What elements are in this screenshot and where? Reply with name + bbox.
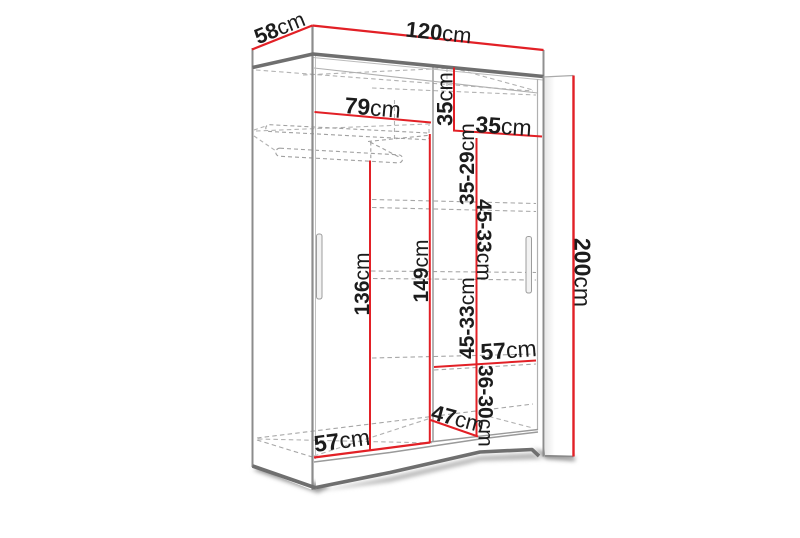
svg-text:35-29cm: 35-29cm [456,123,479,205]
svg-text:57cm: 57cm [480,335,538,365]
svg-text:200cm: 200cm [570,238,596,307]
svg-text:35cm: 35cm [475,111,533,141]
svg-text:136cm: 136cm [351,252,374,315]
svg-text:79cm: 79cm [344,92,402,123]
svg-text:45-33cm: 45-33cm [456,277,479,359]
svg-text:45-33cm: 45-33cm [472,199,495,281]
svg-text:35cm: 35cm [433,72,458,126]
svg-text:149cm: 149cm [410,239,433,302]
